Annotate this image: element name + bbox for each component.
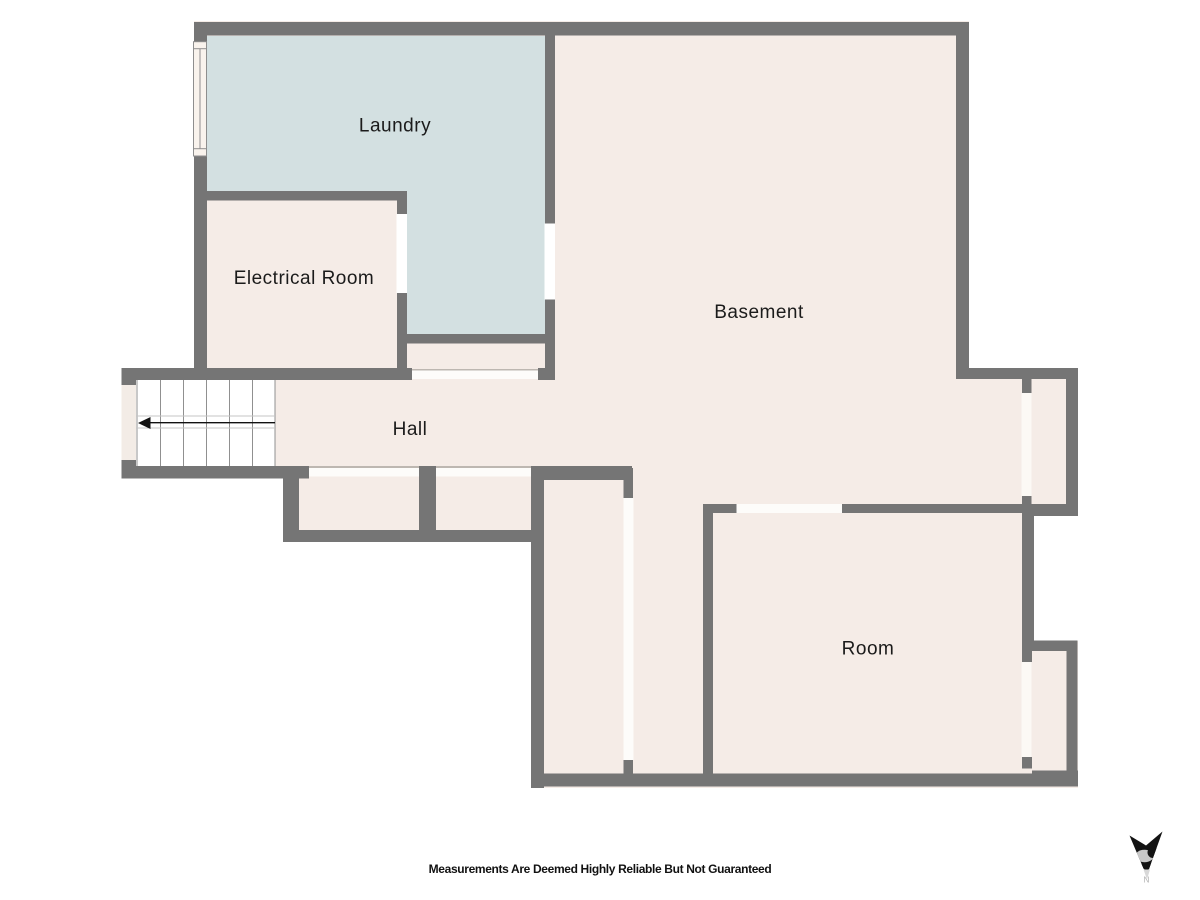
svg-text:Basement: Basement: [714, 302, 804, 323]
svg-text:Room: Room: [842, 639, 895, 660]
svg-text:Measurements Are Deemed Highly: Measurements Are Deemed Highly Reliable …: [429, 862, 772, 876]
svg-text:Laundry: Laundry: [359, 116, 431, 137]
svg-text:N: N: [1143, 875, 1149, 885]
svg-text:Electrical Room: Electrical Room: [234, 268, 375, 289]
svg-text:Hall: Hall: [393, 419, 428, 440]
